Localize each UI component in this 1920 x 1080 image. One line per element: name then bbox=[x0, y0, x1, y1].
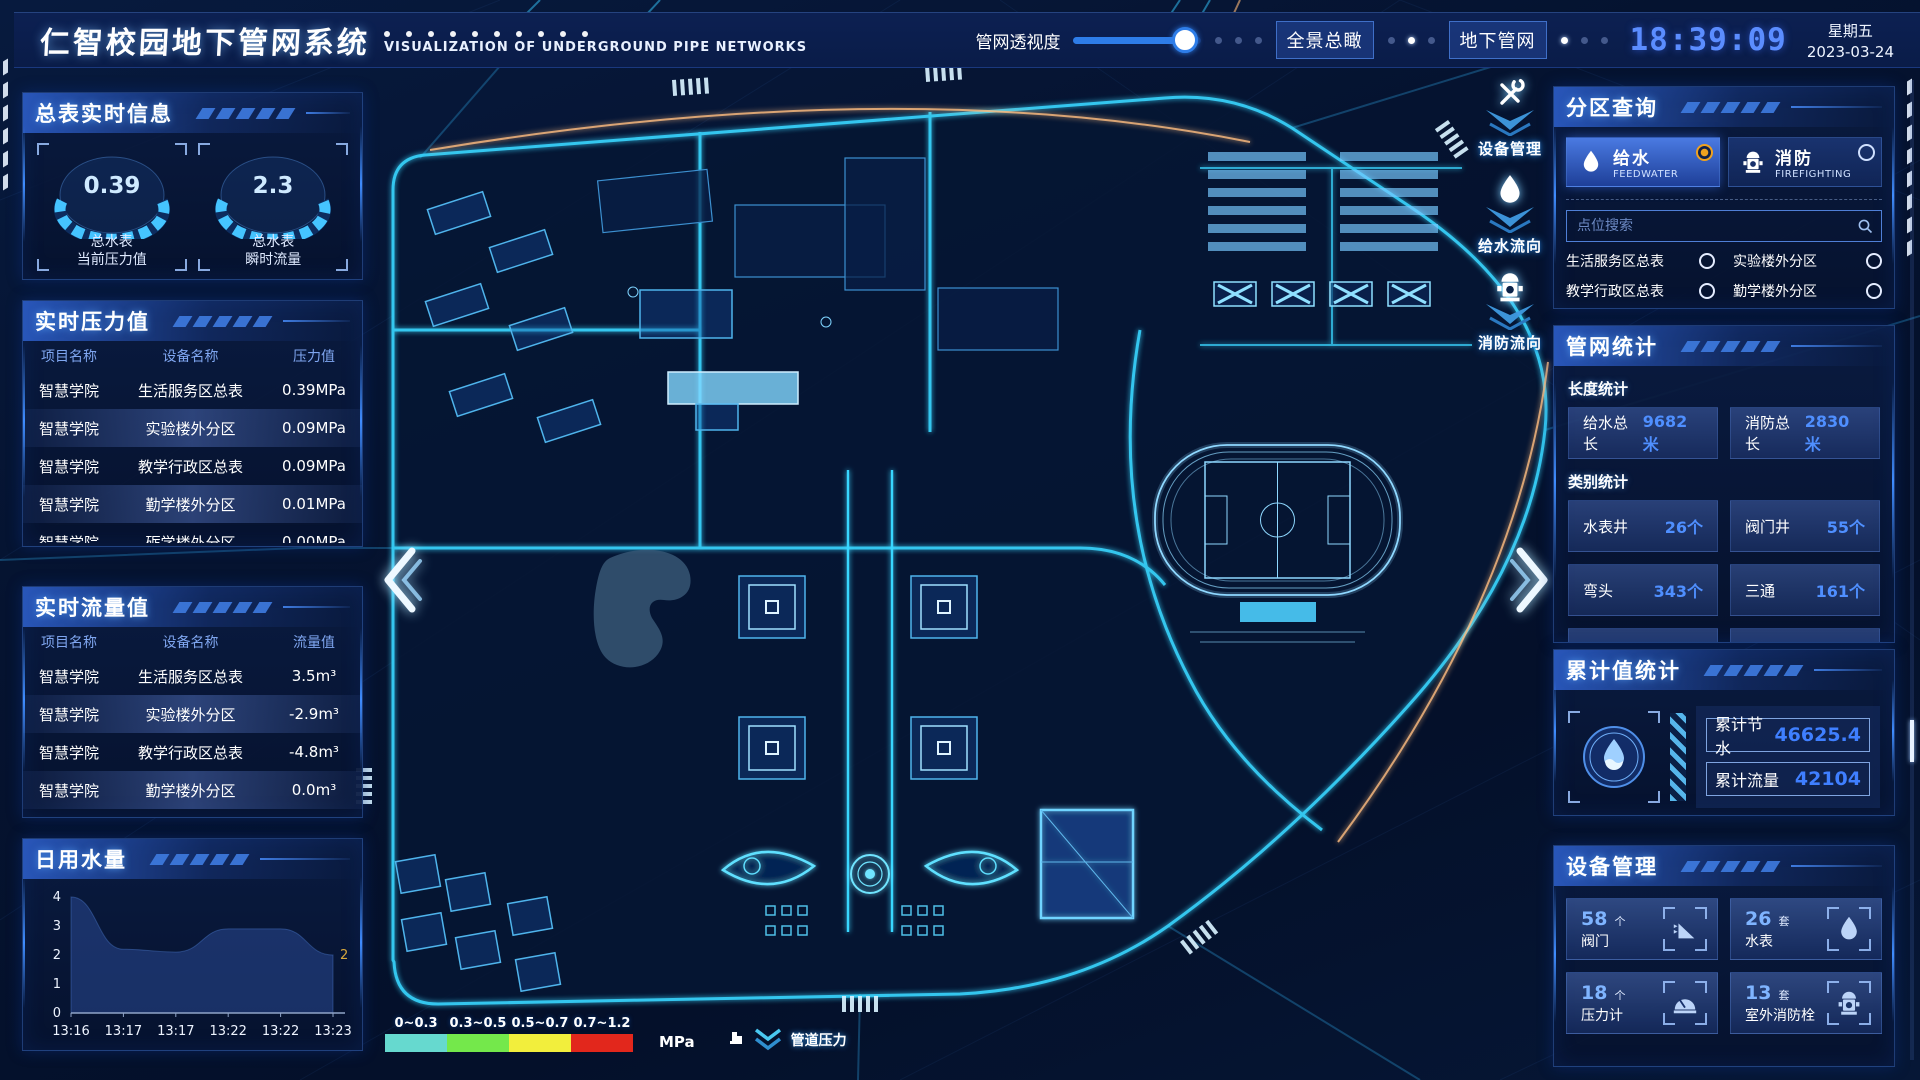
gauge-label-line2: 当前压力值 bbox=[77, 252, 147, 268]
fab-label: 消防流向 bbox=[1478, 332, 1542, 353]
clock-time: 18:39:09 bbox=[1630, 22, 1787, 58]
legend-color-swatch bbox=[447, 1034, 509, 1052]
table-row[interactable]: 智慧学院砺学楼外分区2.3m³ bbox=[23, 809, 362, 815]
dashed-separator bbox=[1566, 199, 1882, 200]
length-stats-heading: 长度统计 bbox=[1568, 378, 1880, 399]
table-row[interactable]: 智慧学院教学行政区总表0.09MPa bbox=[23, 447, 362, 485]
tab-feedwater[interactable]: 给水 FEEDWATER bbox=[1566, 137, 1720, 187]
table-header: 项目名称设备名称流量值 bbox=[23, 627, 362, 657]
svg-text:0: 0 bbox=[52, 1006, 60, 1021]
legend-unit: MPa bbox=[659, 1033, 695, 1051]
panel-title: 分区查询 bbox=[1566, 92, 1658, 122]
slash-decoration bbox=[153, 854, 246, 865]
panel-device-management: 设备管理 58个 阀门 26套 水表 bbox=[1553, 845, 1895, 1067]
stat-box bbox=[1568, 628, 1718, 643]
table-row[interactable]: 智慧学院勤学楼外分区0.0m³ bbox=[23, 771, 362, 809]
point-item[interactable]: 勤学楼外分区 bbox=[1733, 276, 1882, 306]
pipe-opacity-slider[interactable] bbox=[1073, 37, 1201, 44]
app-header: 仁智校园地下管网系统 VISUALIZATION OF UNDERGROUND … bbox=[14, 12, 1920, 68]
flow-table: 智慧学院生活服务区总表3.5m³ 智慧学院实验楼外分区-2.9m³ 智慧学院教学… bbox=[23, 657, 362, 815]
chevron-down-icon bbox=[1482, 207, 1538, 233]
device-card-pressure-gauges[interactable]: 18个 压力计 bbox=[1566, 972, 1718, 1034]
svg-text:3: 3 bbox=[52, 919, 60, 934]
panel-zone-query: 分区查询 给水 FEEDWATER 消防 FIREFIGHTING bbox=[1553, 86, 1895, 309]
table-row[interactable]: 智慧学院实验楼外分区-2.9m³ bbox=[23, 695, 362, 733]
clock: 18:39:09 星期五 2023-03-24 bbox=[1630, 20, 1895, 61]
category-stats-heading: 类别统计 bbox=[1568, 471, 1880, 492]
app-title: 仁智校园地下管网系统 bbox=[39, 18, 371, 62]
clock-date: 2023-03-24 bbox=[1807, 43, 1894, 61]
svg-text:13:17: 13:17 bbox=[104, 1024, 141, 1039]
edge-decoration-left bbox=[3, 60, 8, 189]
fab-label: 给水流向 bbox=[1478, 235, 1542, 256]
hydrant-icon bbox=[1741, 149, 1765, 175]
svg-text:13:16: 13:16 bbox=[52, 1024, 89, 1039]
gauge-label-line1: 总水表 bbox=[252, 234, 294, 250]
fab-feedwater-flow[interactable]: 给水流向 bbox=[1478, 173, 1542, 256]
scrollbar-thumb[interactable] bbox=[1910, 720, 1914, 762]
slider-thumb[interactable] bbox=[1172, 27, 1198, 53]
legend-range-label: 0.3~0.5 bbox=[450, 1016, 507, 1031]
stat-box: 阀门井55个 bbox=[1730, 500, 1880, 552]
table-row[interactable]: 智慧学院砺学楼外分区0.00MPa bbox=[23, 523, 362, 543]
overview-button[interactable]: 全景总瞰 bbox=[1276, 21, 1374, 59]
stat-box: 水表井26个 bbox=[1568, 500, 1718, 552]
pipe-opacity-control: 管网透视度 bbox=[976, 28, 1201, 53]
chevron-down-icon bbox=[1482, 110, 1538, 136]
point-item[interactable]: 宿舍区泵房 bbox=[1733, 306, 1882, 309]
svg-text:1: 1 bbox=[52, 977, 60, 992]
chevron-down-icon bbox=[1482, 304, 1538, 330]
legend-range-label: 0.7~1.2 bbox=[574, 1016, 631, 1031]
chevron-down-icon bbox=[753, 1028, 783, 1052]
radio-unselected-icon bbox=[1699, 283, 1715, 299]
table-header: 项目名称设备名称压力值 bbox=[23, 341, 362, 371]
svg-text:13:17: 13:17 bbox=[157, 1024, 194, 1039]
gauge-instant-flow: 2.3 总水表 瞬时流量 bbox=[198, 143, 348, 271]
svg-text:13:23: 13:23 bbox=[314, 1024, 351, 1039]
fab-device-management[interactable]: 设备管理 bbox=[1478, 76, 1542, 159]
legend-pressure-label: 管道压力 bbox=[791, 1030, 847, 1050]
dot-separator bbox=[1388, 37, 1435, 44]
radio-unselected-icon bbox=[1699, 253, 1715, 269]
table-row[interactable]: 智慧学院生活服务区总表3.5m³ bbox=[23, 657, 362, 695]
panel-realtime-flow: 实时流量值 项目名称设备名称流量值 智慧学院生活服务区总表3.5m³ 智慧学院实… bbox=[22, 586, 363, 818]
cumulative-row: 累计节水46625.4 bbox=[1706, 718, 1870, 752]
panel-network-stats: 管网统计 长度统计 给水总长9682米 消防总长2830米 类别统计 水表井26… bbox=[1553, 325, 1895, 643]
slash-decoration bbox=[176, 316, 269, 327]
table-row[interactable]: 智慧学院实验楼外分区0.09MPa bbox=[23, 409, 362, 447]
panel-title: 日用水量 bbox=[35, 844, 127, 874]
panel-title: 实时压力值 bbox=[35, 306, 150, 336]
table-row[interactable]: 智慧学院生活服务区总表0.39MPa bbox=[23, 371, 362, 409]
tab-firefighting[interactable]: 消防 FIREFIGHTING bbox=[1728, 137, 1882, 187]
wrench-icon bbox=[1493, 76, 1527, 110]
water-drop-icon bbox=[1579, 149, 1603, 175]
slash-decoration bbox=[199, 108, 292, 119]
radio-unselected-icon bbox=[1858, 144, 1875, 161]
tab-label: 消防 bbox=[1775, 144, 1851, 169]
device-card-valves[interactable]: 58个 阀门 bbox=[1566, 898, 1718, 960]
radio-selected-icon bbox=[1696, 144, 1713, 161]
panel-title: 管网统计 bbox=[1566, 331, 1658, 361]
underground-pipes-button[interactable]: 地下管网 bbox=[1449, 21, 1547, 59]
gymnasium bbox=[1041, 810, 1133, 918]
page-scrollbar[interactable] bbox=[1910, 80, 1914, 1060]
stat-box: 三通161个 bbox=[1730, 564, 1880, 616]
svg-text:0.39: 0.39 bbox=[83, 173, 140, 199]
slash-decoration bbox=[1684, 341, 1777, 352]
panel-title: 总表实时信息 bbox=[35, 98, 173, 128]
legend-range-label: 0~0.3 bbox=[395, 1016, 438, 1031]
gauge-label-line2: 瞬时流量 bbox=[245, 252, 301, 268]
slider-fill bbox=[1073, 37, 1186, 44]
gauge-dial: 0.39 bbox=[46, 143, 178, 239]
tab-label: 给水 bbox=[1613, 144, 1678, 169]
point-list: 生活服务区总表 实验楼外分区 教学行政区总表 勤学楼外分区 砺学楼外分区 宿舍区… bbox=[1554, 242, 1894, 309]
daily-water-chart: 0123413:1613:1713:1713:2213:2213:232 bbox=[35, 881, 351, 1045]
hydrant-icon bbox=[1494, 270, 1526, 304]
svg-text:13:22: 13:22 bbox=[261, 1024, 298, 1039]
gauge-label-line1: 总水表 bbox=[91, 234, 133, 250]
point-search bbox=[1566, 210, 1882, 242]
table-row[interactable]: 智慧学院勤学楼外分区0.01MPa bbox=[23, 485, 362, 523]
fab-firefighting-flow[interactable]: 消防流向 bbox=[1478, 270, 1542, 353]
point-item[interactable]: 砺学楼外分区 bbox=[1566, 306, 1715, 309]
panel-realtime-info: 总表实时信息 0.39 总水表 当前压力值 bbox=[22, 92, 363, 280]
dashboard-root: 设备管理 给水流向 bbox=[0, 0, 1920, 1080]
svg-text:4: 4 bbox=[52, 890, 60, 905]
search-icon bbox=[1857, 218, 1873, 234]
point-item[interactable]: 实验楼外分区 bbox=[1733, 246, 1882, 276]
panel-cumulative-stats: 累计值统计 累计节水46625.4 累计流量42104 bbox=[1553, 649, 1895, 816]
stat-box: 消防总长2830米 bbox=[1730, 407, 1880, 459]
map-pan-left-arrow[interactable] bbox=[378, 545, 424, 615]
dot-separator bbox=[1215, 37, 1262, 44]
legend-range-label: 0.5~0.7 bbox=[512, 1016, 569, 1031]
panel-title: 累计值统计 bbox=[1566, 655, 1681, 685]
pressure-legend: 0~0.3 0.3~0.5 0.5~0.7 0.7~1.2 MPa 管道压力 bbox=[385, 1016, 847, 1052]
stat-box: 弯头343个 bbox=[1568, 564, 1718, 616]
gauge-dial: 2.3 bbox=[207, 143, 339, 239]
water-drop-icon bbox=[1494, 173, 1526, 207]
legend-color-swatch bbox=[571, 1034, 633, 1052]
table-row[interactable]: 智慧学院教学行政区总表-4.8m³ bbox=[23, 733, 362, 771]
tab-sublabel: FEEDWATER bbox=[1613, 169, 1678, 180]
stat-box: 给水总长9682米 bbox=[1568, 407, 1718, 459]
radio-unselected-icon bbox=[1866, 253, 1882, 269]
device-card-water-meters[interactable]: 26套 水表 bbox=[1730, 898, 1882, 960]
title-dots bbox=[384, 31, 807, 37]
slash-decoration bbox=[1684, 102, 1777, 113]
radio-unselected-icon bbox=[1866, 283, 1882, 299]
stripe-divider bbox=[1670, 713, 1686, 801]
slash-decoration bbox=[1707, 665, 1800, 676]
point-item[interactable]: 教学行政区总表 bbox=[1566, 276, 1715, 306]
tab-sublabel: FIREFIGHTING bbox=[1775, 169, 1851, 180]
panel-title: 实时流量值 bbox=[35, 592, 150, 622]
panel-realtime-pressure: 实时压力值 项目名称设备名称压力值 智慧学院生活服务区总表0.39MPa 智慧学… bbox=[22, 300, 363, 547]
legend-color-swatch bbox=[509, 1034, 571, 1052]
app-subtitle: VISUALIZATION OF UNDERGROUND PIPE NETWOR… bbox=[384, 40, 807, 55]
svg-text:2: 2 bbox=[340, 948, 348, 963]
svg-text:2.3: 2.3 bbox=[253, 173, 294, 199]
device-card-outdoor-hydrants[interactable]: 13套 室外消防栓 bbox=[1730, 972, 1882, 1034]
gauge-main-pressure: 0.39 总水表 当前压力值 bbox=[37, 143, 187, 271]
slash-decoration bbox=[1684, 861, 1777, 872]
legend-color-swatch bbox=[385, 1034, 447, 1052]
cumulative-row: 累计流量42104 bbox=[1706, 762, 1870, 796]
pressure-table: 智慧学院生活服务区总表0.39MPa 智慧学院实验楼外分区0.09MPa 智慧学… bbox=[23, 371, 362, 543]
fab-label: 设备管理 bbox=[1478, 138, 1542, 159]
map-fab-column: 设备管理 给水流向 bbox=[1464, 76, 1556, 367]
svg-text:13:22: 13:22 bbox=[209, 1024, 246, 1039]
map-pan-right-arrow[interactable] bbox=[1508, 545, 1554, 615]
clock-weekday: 星期五 bbox=[1828, 20, 1873, 41]
slash-decoration bbox=[176, 602, 269, 613]
water-saving-icon bbox=[1568, 711, 1660, 803]
point-item[interactable]: 生活服务区总表 bbox=[1566, 246, 1715, 276]
panel-title: 设备管理 bbox=[1566, 851, 1658, 881]
search-input[interactable] bbox=[1575, 217, 1857, 235]
dot-separator bbox=[1561, 37, 1608, 44]
panel-daily-water: 日用水量 0123413:1613:1713:1713:2213:2213:23… bbox=[22, 838, 363, 1051]
slider-label: 管网透视度 bbox=[976, 28, 1061, 53]
pressure-meter-icon bbox=[727, 1030, 745, 1052]
stat-box bbox=[1730, 628, 1880, 643]
svg-text:2: 2 bbox=[52, 948, 60, 963]
